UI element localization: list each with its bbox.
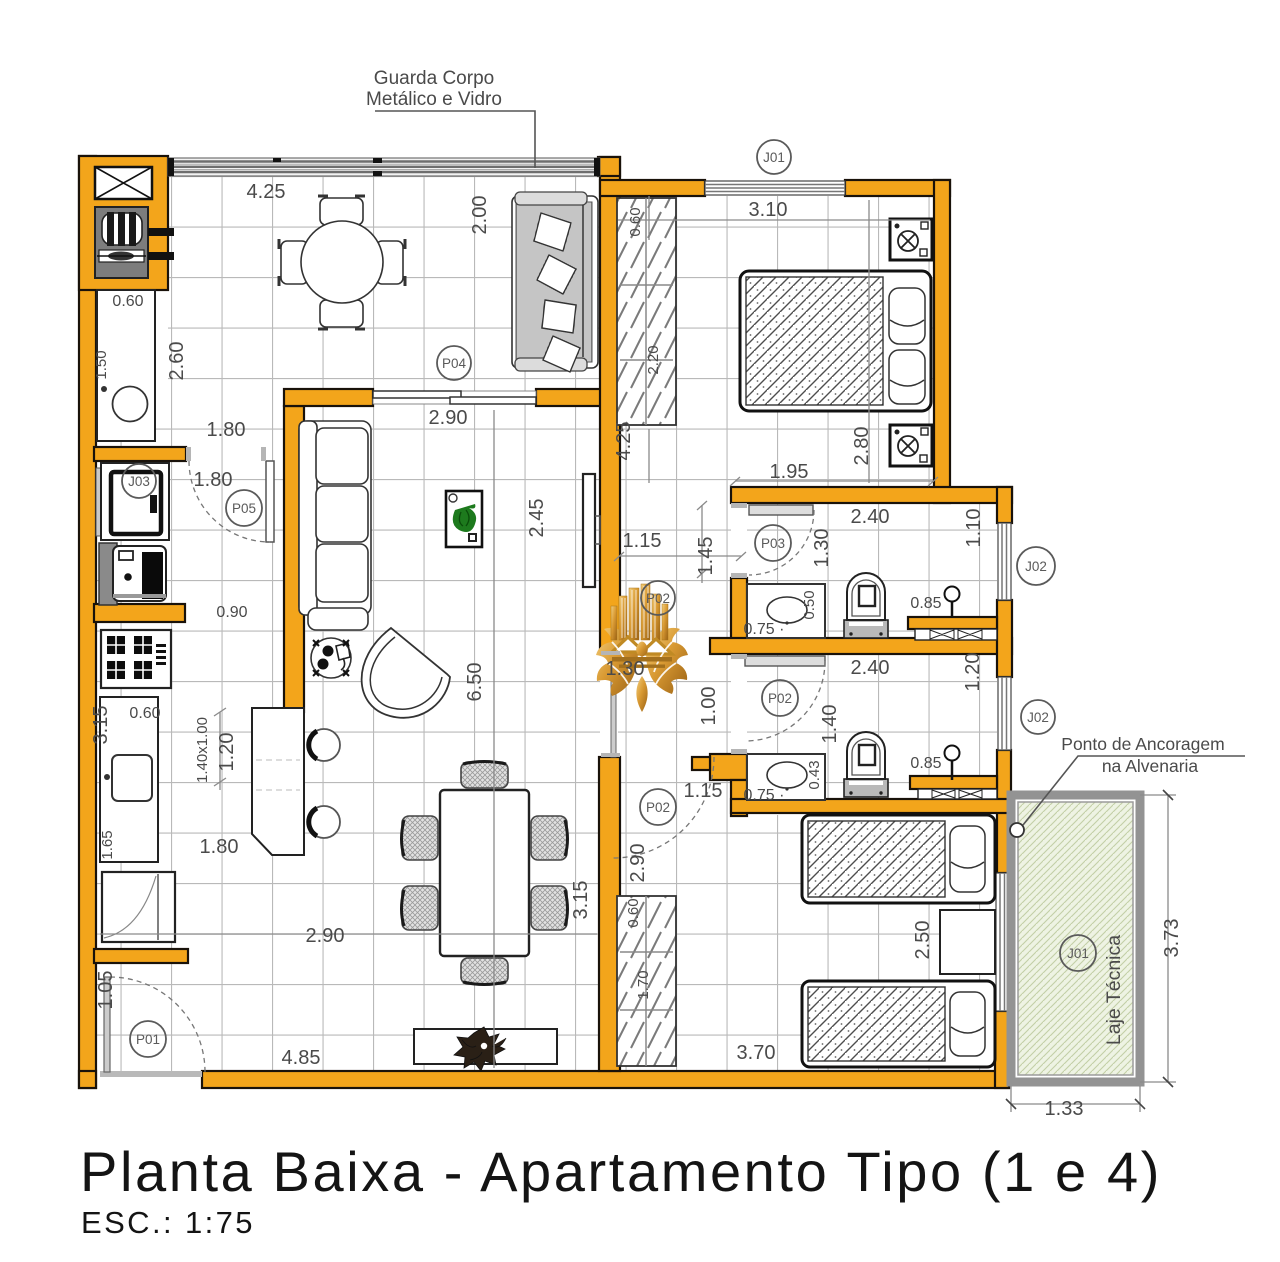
svg-text:J01: J01 — [763, 150, 785, 165]
svg-text:2.60: 2.60 — [166, 342, 188, 381]
svg-text:Planta Baixa - Apartamento Tip: Planta Baixa - Apartamento Tipo (1 e 4) — [80, 1140, 1162, 1203]
svg-text:2.90: 2.90 — [429, 407, 468, 429]
svg-text:P04: P04 — [442, 356, 467, 371]
svg-text:Guarda Corpo: Guarda Corpo — [374, 68, 494, 89]
svg-text:1.15: 1.15 — [684, 780, 723, 802]
svg-text:3.73: 3.73 — [1161, 919, 1183, 958]
svg-text:P02: P02 — [646, 800, 670, 815]
svg-text:Ponto de Ancoragem: Ponto de Ancoragem — [1061, 734, 1224, 754]
svg-text:0.50: 0.50 — [801, 590, 818, 619]
svg-text:2.80: 2.80 — [851, 427, 873, 466]
svg-text:1.00: 1.00 — [698, 687, 720, 726]
svg-text:Laje Técnica: Laje Técnica — [1103, 935, 1125, 1045]
svg-text:1.40: 1.40 — [819, 705, 841, 744]
svg-text:1.20: 1.20 — [216, 733, 238, 772]
svg-text:3.15: 3.15 — [90, 706, 112, 745]
svg-text:1.65: 1.65 — [99, 830, 116, 859]
svg-text:0.60: 0.60 — [627, 207, 644, 236]
svg-text:2.90: 2.90 — [306, 925, 345, 947]
svg-text:P02: P02 — [646, 591, 670, 606]
svg-text:4.25: 4.25 — [247, 181, 286, 203]
svg-text:2.50: 2.50 — [912, 921, 934, 960]
svg-text:0.43: 0.43 — [806, 760, 823, 789]
svg-text:1.05: 1.05 — [95, 971, 117, 1010]
svg-text:na Alvenaria: na Alvenaria — [1102, 756, 1199, 776]
svg-text:1.50: 1.50 — [93, 350, 110, 379]
svg-text:0.85: 0.85 — [910, 595, 941, 612]
svg-text:0.60: 0.60 — [112, 293, 143, 310]
svg-text:4.25: 4.25 — [613, 422, 635, 461]
svg-text:J03: J03 — [128, 474, 150, 489]
svg-text:J01: J01 — [1067, 946, 1089, 961]
svg-text:3.70: 3.70 — [737, 1042, 776, 1064]
svg-text:2.90: 2.90 — [627, 844, 649, 883]
svg-text:1.30: 1.30 — [606, 658, 645, 680]
svg-text:0.90: 0.90 — [216, 604, 247, 621]
svg-text:1.20: 1.20 — [962, 653, 984, 692]
svg-text:2.45: 2.45 — [526, 499, 548, 538]
svg-text:3.10: 3.10 — [749, 199, 788, 221]
svg-text:J02: J02 — [1027, 710, 1049, 725]
svg-text:1.33: 1.33 — [1045, 1098, 1084, 1120]
svg-text:1.15: 1.15 — [623, 530, 662, 552]
svg-text:P05: P05 — [232, 501, 256, 516]
svg-text:1.45: 1.45 — [695, 537, 717, 576]
svg-text:3.15: 3.15 — [570, 881, 592, 920]
svg-text:P03: P03 — [761, 536, 785, 551]
svg-text:J02: J02 — [1025, 559, 1047, 574]
svg-text:0.85: 0.85 — [910, 755, 941, 772]
svg-text:6.50: 6.50 — [464, 663, 486, 702]
svg-text:2.40: 2.40 — [851, 657, 890, 679]
svg-text:0.60: 0.60 — [625, 898, 642, 927]
svg-text:2.40: 2.40 — [851, 506, 890, 528]
svg-text:P02: P02 — [768, 691, 792, 706]
svg-text:1.10: 1.10 — [963, 509, 985, 548]
svg-text:2.00: 2.00 — [469, 196, 491, 235]
svg-text:ESC.: 1:75: ESC.: 1:75 — [81, 1205, 255, 1240]
svg-text:0.75 ·: 0.75 · — [744, 621, 785, 638]
svg-text:1.80: 1.80 — [200, 836, 239, 858]
svg-text:1.95: 1.95 — [770, 461, 809, 483]
svg-text:1.70: 1.70 — [635, 970, 652, 999]
svg-text:P01: P01 — [136, 1032, 160, 1047]
svg-text:1.30: 1.30 — [811, 529, 833, 568]
svg-text:2.20: 2.20 — [645, 345, 662, 374]
svg-text:1.80: 1.80 — [194, 469, 233, 491]
svg-text:1.40x1.00: 1.40x1.00 — [194, 717, 211, 783]
svg-text:Metálico e Vidro: Metálico e Vidro — [366, 89, 502, 110]
svg-text:4.85: 4.85 — [282, 1047, 321, 1069]
svg-text:0.60: 0.60 — [129, 705, 160, 722]
svg-text:0.75 ·: 0.75 · — [744, 787, 785, 804]
svg-text:1.80: 1.80 — [207, 419, 246, 441]
